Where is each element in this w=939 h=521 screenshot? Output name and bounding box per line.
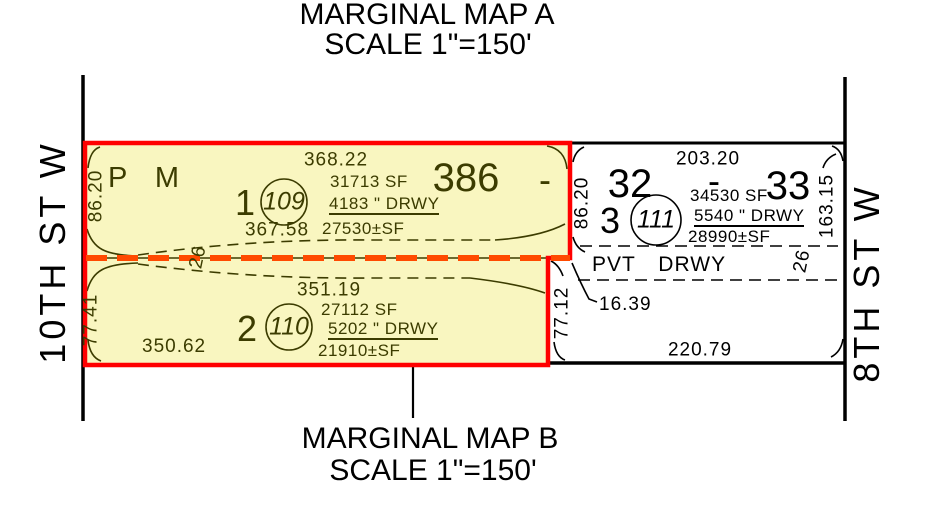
fillet-top-right-street bbox=[832, 146, 843, 161]
parcel3-gross-sf: 34530 SF bbox=[690, 187, 768, 204]
parcel2-net-sf: 21910±SF bbox=[318, 342, 400, 359]
book-number: 386 bbox=[433, 158, 500, 198]
marginal-map-canvas: MARGINAL MAP A SCALE 1"=150' MARGINAL MA… bbox=[0, 0, 939, 521]
hook-16315-top bbox=[823, 154, 836, 168]
parcel3-lot-number: 3 bbox=[600, 203, 620, 239]
hook-7712-top bbox=[551, 261, 563, 276]
parcel1-west-dim: 86.20 bbox=[87, 170, 106, 223]
parcel3-drwy-sf: 5540 " DRWY bbox=[694, 207, 804, 227]
pvt-drwy-width-east: 26 bbox=[790, 248, 813, 275]
book-dash: - bbox=[539, 162, 551, 198]
fillet-bottom-right-street bbox=[831, 339, 843, 357]
parcel2-drwy-sf: 5202 " DRWY bbox=[328, 320, 438, 340]
street-label-10th-st-w: 10TH ST W bbox=[35, 140, 71, 363]
parcel1-south-dim: 367.58 bbox=[245, 221, 309, 240]
parcel2-north-dim: 351.19 bbox=[297, 281, 361, 300]
street-label-8th-st-w: 8TH ST W bbox=[849, 183, 885, 382]
parcel1-circle-number: 109 bbox=[263, 190, 305, 215]
east-block-west-dim: 86.20 bbox=[573, 177, 592, 230]
parcel1-north-dim: 368.22 bbox=[304, 151, 368, 170]
pm-map-label: P M bbox=[108, 164, 189, 193]
map-a-scale: SCALE 1"=150' bbox=[324, 30, 531, 60]
parcel2-circle-number: 110 bbox=[269, 315, 309, 340]
parcel2-south-dim: 350.62 bbox=[142, 337, 206, 356]
parcel2-gross-sf: 27112 SF bbox=[321, 301, 397, 318]
parcel1-gross-sf: 31713 SF bbox=[330, 173, 408, 190]
fillet-bottom-step bbox=[554, 342, 565, 360]
parcel2-lot-number: 2 bbox=[237, 311, 257, 347]
parcel1-lot-number: 1 bbox=[235, 185, 255, 221]
parcel1-drwy-sf: 4183 " DRWY bbox=[329, 195, 439, 215]
pvt-drwy-label: PVT DRWY bbox=[592, 254, 726, 275]
lot-33-number: 33 bbox=[766, 166, 811, 206]
east-block-southwest-dim: 77.12 bbox=[553, 287, 572, 340]
parcel2-west-dim: 77.41 bbox=[82, 294, 101, 347]
hook-8620-east-top bbox=[573, 147, 584, 162]
parcel3-circle-number: 111 bbox=[637, 208, 675, 233]
lot-32-number: 32 bbox=[608, 164, 653, 204]
east-block-south-dim: 220.79 bbox=[668, 341, 732, 360]
hook-8620-east-bottom bbox=[573, 237, 585, 252]
east-block-east-dim: 163.15 bbox=[818, 174, 837, 238]
map-a-title: MARGINAL MAP A bbox=[299, 0, 554, 30]
offset-dim-1639: 16.39 bbox=[599, 295, 652, 314]
map-b-scale: SCALE 1"=150' bbox=[329, 456, 536, 486]
map-b-title: MARGINAL MAP B bbox=[302, 424, 559, 454]
parcel3-net-sf: 28990±SF bbox=[688, 228, 770, 245]
pvt-drwy-width-west: 26 bbox=[186, 244, 209, 271]
parcel1-net-sf: 27530±SF bbox=[322, 220, 404, 237]
